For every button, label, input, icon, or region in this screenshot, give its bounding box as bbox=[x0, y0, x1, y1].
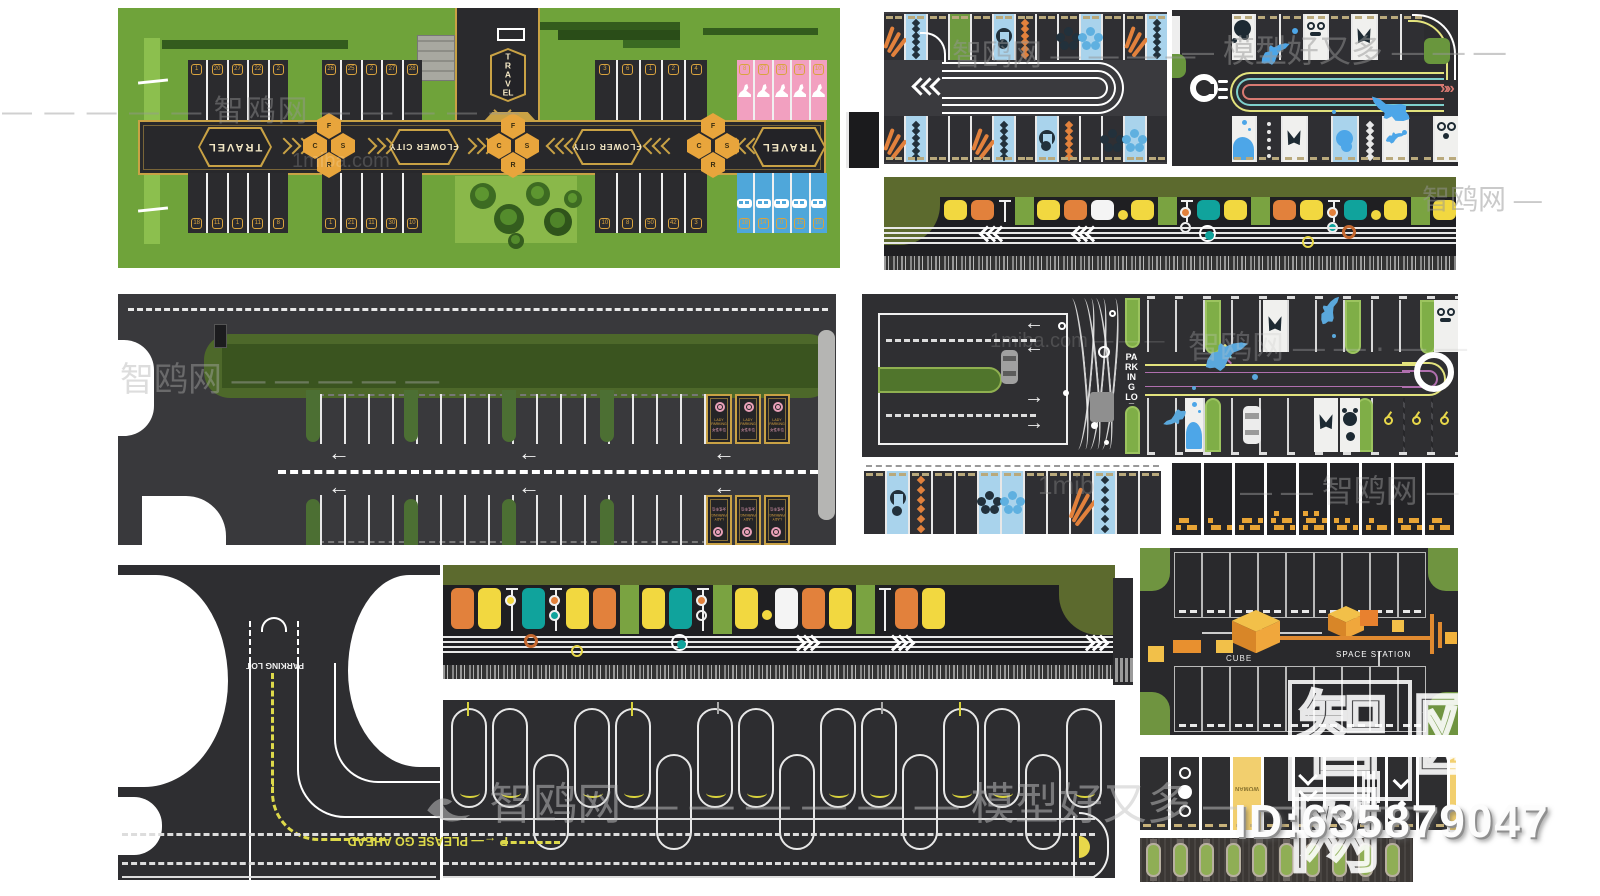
stall-line bbox=[1399, 300, 1401, 352]
color-stall bbox=[478, 588, 501, 629]
color-stall bbox=[451, 588, 474, 629]
green-divider bbox=[404, 499, 418, 545]
dot-marking bbox=[1004, 505, 1013, 514]
car-window bbox=[1003, 356, 1016, 361]
parking-stall: 9 bbox=[792, 60, 808, 120]
circle-marking bbox=[1179, 767, 1191, 779]
tick-mark bbox=[1188, 824, 1196, 827]
pixel-block bbox=[1429, 525, 1434, 530]
pixel-block bbox=[1314, 511, 1319, 516]
aisle-dash-line bbox=[278, 470, 818, 474]
stall-number-badge: 20 bbox=[212, 64, 223, 75]
iso-cube bbox=[1328, 606, 1364, 638]
smile-mark bbox=[460, 788, 480, 798]
iso-cube bbox=[1232, 610, 1280, 653]
dot-marking bbox=[1060, 41, 1069, 50]
road-dash bbox=[443, 833, 1095, 836]
car-window bbox=[1245, 413, 1259, 419]
tick-mark bbox=[1335, 157, 1342, 160]
whale-tail bbox=[1324, 413, 1338, 429]
tick-mark bbox=[1061, 16, 1068, 19]
stall-line bbox=[320, 495, 322, 545]
tick-mark bbox=[1391, 16, 1398, 19]
parking-stall: 11 bbox=[363, 173, 381, 233]
pixel-block bbox=[1353, 525, 1358, 530]
tick-mark bbox=[1319, 610, 1326, 613]
stall-line bbox=[440, 495, 442, 545]
lady-parking-label: LADY PARKING bbox=[738, 418, 758, 426]
tick-mark bbox=[908, 157, 915, 160]
orange-block bbox=[1360, 610, 1378, 626]
color-stall bbox=[1433, 200, 1456, 220]
stall-number-badge: 28 bbox=[407, 64, 418, 75]
color-stall bbox=[1037, 200, 1060, 220]
vehicle-window bbox=[776, 201, 780, 204]
parking-stall bbox=[928, 116, 948, 162]
parking-stall bbox=[1185, 398, 1203, 452]
u-stall-outline bbox=[697, 708, 733, 808]
parking-stall: 11 bbox=[208, 173, 226, 233]
heel-icon bbox=[775, 84, 788, 97]
pixel-block bbox=[1417, 525, 1422, 530]
tick-mark bbox=[1136, 157, 1143, 160]
tick-mark bbox=[1073, 473, 1080, 476]
wave-line bbox=[1218, 96, 1228, 99]
dot-marking bbox=[1008, 491, 1017, 500]
dot-marking bbox=[1292, 28, 1298, 34]
stall-line bbox=[464, 495, 466, 545]
tick-mark bbox=[958, 473, 965, 476]
heel-icon bbox=[812, 84, 825, 97]
tick-mark bbox=[1039, 16, 1046, 19]
green-island bbox=[1345, 300, 1361, 354]
brand-watermark: 智鸥网 bbox=[1288, 690, 1600, 878]
dolphin-icon bbox=[1315, 294, 1345, 328]
parking-stall bbox=[950, 116, 970, 162]
circle-marking bbox=[1342, 225, 1356, 239]
panel-u-stall-lot bbox=[443, 700, 1115, 878]
green-divider bbox=[502, 390, 516, 442]
circle-marking bbox=[1109, 310, 1116, 317]
koi-gap bbox=[1202, 84, 1214, 94]
dot-marking bbox=[1104, 440, 1109, 445]
tick-mark bbox=[1218, 610, 1225, 613]
lane-line-purple bbox=[1145, 386, 1410, 387]
road-edge bbox=[122, 876, 436, 878]
pixel-block bbox=[1247, 518, 1252, 523]
panel-wave-lane-lot bbox=[884, 12, 1167, 164]
circle-marking bbox=[524, 634, 538, 648]
hedge-row bbox=[623, 40, 680, 48]
tick-mark bbox=[1179, 610, 1186, 613]
stall-line bbox=[632, 394, 634, 444]
car-top-view bbox=[1243, 406, 1261, 444]
woman-label: WOMAN bbox=[1235, 785, 1259, 791]
parking-stall bbox=[1171, 757, 1199, 830]
stall-number-badge: 10 bbox=[599, 218, 610, 229]
parking-stall bbox=[1314, 398, 1338, 452]
guide-dash bbox=[271, 673, 274, 793]
color-stall bbox=[1197, 200, 1220, 220]
hedge-median bbox=[878, 367, 1002, 393]
grass-gap bbox=[1411, 197, 1430, 225]
parking-stall: 10 bbox=[811, 60, 827, 120]
smile-mark bbox=[829, 788, 849, 798]
entry-dash bbox=[297, 621, 299, 663]
stall-number-badge: 0 bbox=[776, 218, 787, 229]
diamond-chain-motif bbox=[916, 515, 924, 523]
dot-marking bbox=[1342, 408, 1347, 413]
stall-number-badge: 10 bbox=[407, 218, 418, 229]
circle-marking bbox=[505, 595, 516, 606]
parking-stall bbox=[1398, 552, 1426, 618]
grass-gap bbox=[620, 585, 639, 634]
bar-line bbox=[1130, 658, 1133, 682]
tick-mark bbox=[952, 157, 959, 160]
tick-mark bbox=[1272, 157, 1279, 160]
parking-stall bbox=[1037, 14, 1057, 60]
circle-marking bbox=[1327, 207, 1338, 218]
dot-marking bbox=[1267, 122, 1271, 126]
parking-stall: 1 bbox=[229, 173, 247, 233]
dot-marking bbox=[981, 505, 990, 514]
tick-mark bbox=[1142, 473, 1149, 476]
parking-stall bbox=[1286, 552, 1314, 618]
tick-mark bbox=[1070, 16, 1077, 19]
band-label-travel-left: TRAVEL bbox=[198, 127, 272, 167]
tick-mark bbox=[889, 473, 896, 476]
lady-parking-stall: LADY PARKING女性车位 bbox=[764, 394, 790, 444]
stall-line bbox=[680, 394, 682, 444]
diamond-chain-motif bbox=[916, 505, 924, 513]
diamond-chain-motif bbox=[1153, 51, 1161, 59]
stall-group: 36124 bbox=[595, 60, 707, 120]
u-stall-outline bbox=[984, 708, 1020, 808]
pixel-block bbox=[1216, 525, 1221, 530]
lady-parking-stall: LADY PARKING女性车位 bbox=[735, 394, 761, 444]
tick-mark bbox=[1449, 157, 1456, 160]
stall-line bbox=[344, 495, 346, 545]
parking-stall: 18 bbox=[737, 173, 753, 233]
grass-gap bbox=[1015, 197, 1034, 225]
diamond-chain-motif bbox=[912, 51, 920, 59]
tick-mark bbox=[1083, 157, 1090, 160]
lady-parking-sub: 女性车位 bbox=[709, 428, 729, 433]
parking-stall bbox=[950, 14, 970, 60]
u-stall-outline bbox=[820, 708, 856, 808]
tick-mark bbox=[930, 16, 937, 19]
stall-number-badge: 26 bbox=[325, 64, 336, 75]
pixel-block bbox=[1414, 518, 1419, 523]
green-divider bbox=[306, 390, 320, 442]
color-stall bbox=[895, 588, 918, 629]
parking-stall: 50 bbox=[641, 173, 662, 233]
tick-mark bbox=[895, 157, 902, 160]
tick-mark bbox=[1414, 610, 1421, 613]
tick-mark bbox=[1342, 16, 1349, 19]
tick-mark bbox=[974, 16, 981, 19]
parking-stall: 11 bbox=[249, 173, 267, 233]
hedge-island bbox=[1252, 843, 1267, 877]
lane-line bbox=[443, 646, 1115, 648]
grass-gap bbox=[713, 585, 732, 634]
pixel-block bbox=[1345, 518, 1350, 523]
circle-marking bbox=[1317, 22, 1325, 30]
stall-number-badge: 2 bbox=[366, 64, 377, 75]
pole-bar bbox=[879, 588, 891, 590]
stall-number-badge: 27 bbox=[232, 64, 243, 75]
pixel-block bbox=[1319, 525, 1324, 530]
parking-stall bbox=[1281, 14, 1303, 60]
lady-parking-sub: 女性车位 bbox=[709, 506, 729, 511]
stall-row bbox=[1232, 116, 1458, 162]
hedge-island bbox=[1199, 843, 1214, 877]
vehicle-window bbox=[739, 201, 743, 204]
tick-mark bbox=[1027, 473, 1034, 476]
parking-stall bbox=[1362, 463, 1391, 535]
parking-stall bbox=[1147, 14, 1167, 60]
parking-stall: 42 bbox=[663, 173, 684, 233]
tick-mark bbox=[1259, 157, 1266, 160]
parking-stall: 8 bbox=[618, 173, 639, 233]
diamond-chain-motif bbox=[916, 525, 924, 533]
tick-mark bbox=[1114, 16, 1121, 19]
parking-stall bbox=[1202, 666, 1230, 732]
grey-tick bbox=[881, 702, 883, 714]
wave-line bbox=[1218, 88, 1228, 91]
vehicle-window bbox=[758, 201, 762, 204]
stall-line bbox=[1231, 398, 1233, 452]
tick-mark bbox=[1307, 16, 1314, 19]
vehicle-window bbox=[813, 201, 817, 204]
pixel-block bbox=[1184, 518, 1189, 523]
parking-stall bbox=[1378, 14, 1400, 60]
dot-marking bbox=[1135, 143, 1144, 152]
pixel-block bbox=[1437, 518, 1442, 523]
dot-marking bbox=[1082, 41, 1091, 50]
stall-number-badge: 11 bbox=[366, 218, 377, 229]
stall-line bbox=[1175, 300, 1177, 352]
pole-bar bbox=[697, 588, 709, 590]
panel-color-strip-top bbox=[884, 177, 1456, 270]
squid-motif bbox=[1310, 32, 1321, 36]
parking-stall bbox=[906, 116, 926, 162]
wave-line bbox=[1218, 80, 1228, 83]
tick-mark bbox=[912, 473, 919, 476]
parking-stall bbox=[1125, 116, 1145, 162]
tick-mark bbox=[1291, 610, 1298, 613]
parking-stall: 18 bbox=[188, 173, 206, 233]
color-stall bbox=[944, 200, 967, 220]
barcode-strip bbox=[884, 256, 1456, 270]
tick-mark bbox=[1149, 16, 1156, 19]
green-divider bbox=[306, 499, 320, 545]
grass-gap bbox=[1158, 197, 1177, 225]
stall-line bbox=[344, 394, 346, 444]
pixel-block bbox=[1322, 518, 1327, 523]
pole-bar bbox=[550, 588, 562, 590]
parking-stall bbox=[1037, 116, 1057, 162]
panel-ocean-koi-lot: »» bbox=[1172, 10, 1458, 166]
tick-mark bbox=[1274, 724, 1281, 727]
pixel-block bbox=[1303, 525, 1308, 530]
color-stall bbox=[1300, 200, 1323, 220]
stall-sliver bbox=[1172, 16, 1180, 56]
tick-mark bbox=[1158, 157, 1165, 160]
tick-mark bbox=[1245, 16, 1252, 19]
stall-number-badge: 4 bbox=[691, 64, 702, 75]
dot-marking bbox=[1069, 41, 1078, 50]
dot-marking bbox=[1267, 146, 1271, 150]
lady-parking-stall: LADY PARKING女性车位 bbox=[764, 495, 790, 545]
whale-tail bbox=[1273, 314, 1287, 330]
lane-arrow: ← bbox=[713, 480, 735, 494]
heel-icon bbox=[757, 84, 770, 97]
pixel-block bbox=[1255, 525, 1260, 530]
dot-marking bbox=[1241, 32, 1249, 40]
parking-stall bbox=[1147, 116, 1167, 162]
dot-marking bbox=[1332, 110, 1336, 114]
tick-mark bbox=[1096, 473, 1103, 476]
white-cutout bbox=[118, 340, 154, 436]
lane-arrow: ← bbox=[1024, 312, 1044, 335]
parking-stall bbox=[1257, 116, 1280, 162]
parking-stall bbox=[864, 471, 885, 534]
parking-stall bbox=[1059, 14, 1079, 60]
parking-stall bbox=[1202, 757, 1230, 830]
pixel-block bbox=[1398, 518, 1403, 523]
parking-stall bbox=[1071, 471, 1092, 534]
parking-stall bbox=[1117, 471, 1138, 534]
pole-bar bbox=[1181, 200, 1193, 202]
parking-stall: 27 bbox=[383, 60, 401, 120]
lane-line-yellow bbox=[1145, 394, 1418, 396]
u-stall-outline bbox=[451, 708, 487, 808]
pixel-block bbox=[1279, 525, 1284, 530]
antenna-bar bbox=[1438, 622, 1442, 648]
stall-number-badge: 1 bbox=[232, 218, 243, 229]
dot-marking bbox=[1091, 422, 1098, 429]
tick-mark bbox=[1361, 157, 1368, 160]
parking-stall: 6 bbox=[618, 60, 639, 120]
stall-number-badge: 8 bbox=[622, 218, 633, 229]
stall-number-badge: 8 bbox=[273, 218, 284, 229]
lane-line bbox=[249, 663, 251, 880]
dot-marking bbox=[1242, 120, 1247, 125]
tick-mark bbox=[876, 473, 883, 476]
dot-marking bbox=[1232, 38, 1237, 43]
road-stub bbox=[846, 112, 879, 168]
lady-parking-label: LADY PARKING bbox=[767, 418, 787, 426]
parking-stall bbox=[1330, 463, 1359, 535]
lady-parking-sub: 女性车位 bbox=[767, 506, 787, 511]
pixel-block bbox=[1406, 525, 1411, 530]
lane-line-purple bbox=[1145, 372, 1410, 373]
parking-stall bbox=[1204, 463, 1233, 535]
tick-mark bbox=[1355, 16, 1362, 19]
stall-line bbox=[536, 394, 538, 444]
tick-mark bbox=[983, 16, 990, 19]
parked-truck bbox=[214, 324, 227, 348]
green-band bbox=[884, 177, 1456, 197]
dot-marking bbox=[1063, 390, 1069, 396]
tick-mark bbox=[1235, 724, 1242, 727]
hedge-island bbox=[1173, 843, 1188, 877]
antenna-bar bbox=[1430, 614, 1434, 654]
pixel-block bbox=[1303, 511, 1308, 516]
parking-stall: 2 bbox=[363, 60, 381, 120]
tick-mark bbox=[1234, 16, 1241, 19]
yellow-block bbox=[1216, 640, 1233, 653]
lady-parking-label: LADY PARKING bbox=[767, 513, 787, 521]
parking-stall bbox=[1230, 666, 1258, 732]
stall-number-badge: 3 bbox=[691, 218, 702, 229]
lane-arrow: → bbox=[1024, 386, 1044, 409]
grass-corner bbox=[1140, 692, 1170, 735]
bar-line bbox=[1120, 658, 1123, 682]
stall-line bbox=[464, 394, 466, 444]
parking-stall bbox=[1016, 14, 1036, 60]
stall-number-badge: 50 bbox=[645, 218, 656, 229]
lane-dash bbox=[886, 339, 1036, 342]
lady-parking-stall: LADY PARKING女性车位 bbox=[735, 495, 761, 545]
tick-mark bbox=[1207, 610, 1214, 613]
circle-marking bbox=[1302, 236, 1314, 248]
grass-gap bbox=[1251, 197, 1270, 225]
go-ahead-road-label: P ←— PLEASE GO AHEAD bbox=[388, 834, 508, 848]
stall-line bbox=[1315, 300, 1317, 352]
pixel-block bbox=[1192, 525, 1197, 530]
lane-arrow: ← bbox=[518, 480, 540, 494]
parking-stall bbox=[956, 471, 977, 534]
tick-mark bbox=[952, 16, 959, 19]
parking-stall bbox=[1329, 14, 1351, 60]
pixel-block bbox=[1445, 525, 1450, 530]
parking-stall bbox=[1172, 463, 1201, 535]
tick-mark bbox=[886, 157, 893, 160]
color-stall bbox=[593, 588, 616, 629]
dot-marking bbox=[1013, 505, 1022, 514]
parking-stall bbox=[994, 14, 1014, 60]
pixel-block bbox=[1176, 525, 1181, 530]
stall-number-badge: 33 bbox=[776, 64, 787, 75]
white-cutout bbox=[142, 496, 226, 545]
tick-mark bbox=[1129, 473, 1136, 476]
tick-mark bbox=[930, 157, 937, 160]
circle-marking bbox=[671, 634, 688, 651]
parking-stall bbox=[1202, 552, 1230, 618]
diamond-chain-motif bbox=[1100, 495, 1108, 503]
band-label-travel-right: TRAVEL bbox=[752, 127, 826, 167]
color-stall bbox=[642, 588, 665, 629]
bar-line bbox=[1125, 658, 1128, 682]
vehicle-window bbox=[819, 201, 823, 204]
splash-motif bbox=[1186, 422, 1202, 449]
car-top-view bbox=[1001, 350, 1018, 384]
tick-mark bbox=[1018, 16, 1025, 19]
parking-stall: 4 bbox=[686, 60, 707, 120]
stall-number-badge: 6 bbox=[622, 64, 633, 75]
stall-line bbox=[368, 495, 370, 545]
stall-line bbox=[536, 495, 538, 545]
hedge-row bbox=[162, 40, 348, 49]
dot-marking bbox=[1126, 143, 1135, 152]
charging-stall bbox=[1405, 398, 1429, 452]
dot-marking bbox=[1267, 138, 1271, 142]
dot-marking bbox=[677, 640, 686, 649]
diamond-chain-motif bbox=[1100, 505, 1108, 513]
tick-mark bbox=[961, 157, 968, 160]
